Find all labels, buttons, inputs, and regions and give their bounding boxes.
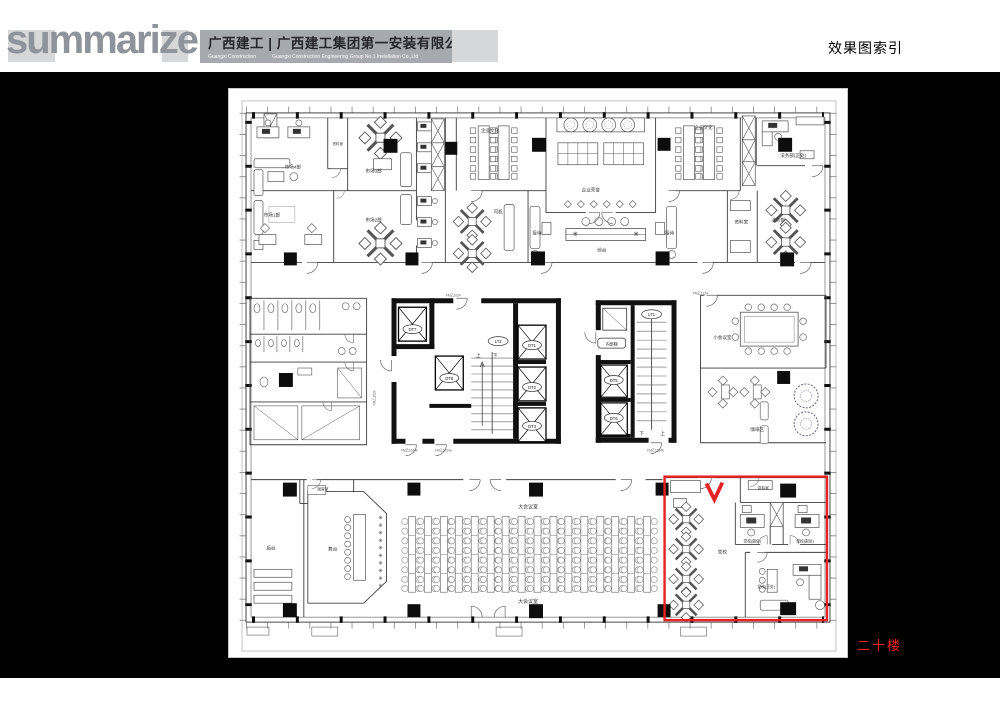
room-label: 接待 [665, 229, 675, 236]
room-label: 大会议室 [518, 504, 538, 511]
small-meeting-room [732, 304, 806, 354]
logo-text: summarize [6, 20, 197, 60]
elevator-label: LT1 [648, 312, 656, 317]
elevator-label: LT2 [495, 339, 503, 344]
fire-door-label: FM乙1224 [693, 290, 708, 295]
room-label: 资料室 [332, 141, 343, 146]
fire-door-label: FM乙1024 [446, 292, 461, 297]
room-label: 市场1部 [264, 212, 281, 219]
fire-door-label: FM乙1224b [647, 448, 664, 453]
room-label: 党校 [718, 548, 728, 555]
room-label: 咖啡区 [750, 426, 764, 433]
room-label: 接待 [532, 229, 542, 236]
room-label: 市场3部 [365, 168, 382, 175]
fire-door-label: FM乙1024b [401, 448, 418, 453]
drawing-canvas: 市场4部 资料室 市场3部 市场1部 市场2部 司机 企业文化 企业荣誉 企业文… [0, 72, 1000, 678]
company-name-cn: 广西建工 | 广西建工集团第一安装有限公司 [208, 32, 446, 52]
room-label: 司机 [494, 209, 504, 216]
highlight-arrow-icon [706, 483, 722, 500]
elevator-label: DT3 [528, 424, 537, 429]
elevator-label: DT8 [445, 376, 454, 381]
stair-up-label: 上 [660, 430, 665, 436]
company-bar: 广西建工 | 广西建工集团第一安装有限公司 Guangxi Constructi… [200, 30, 452, 63]
fire-door-label: FM乙1024a [435, 448, 452, 453]
room-label: 大会议室 [518, 598, 538, 605]
tree-icon [794, 384, 818, 408]
restrooms [254, 300, 362, 440]
elevator-label: DT7 [408, 327, 417, 332]
room-label: 调音室 [317, 487, 329, 492]
room-label: 后台 [266, 544, 276, 551]
elevator-label: DT1 [528, 343, 537, 348]
room-label: 市场4部 [285, 164, 302, 171]
party-school-area [669, 481, 825, 623]
company-en-right: Guangxi Construction Engineering Group N… [272, 54, 418, 60]
room-label: 企业荣誉 [582, 187, 601, 194]
company-name-en: Guangxi Construction Guangxi Constructio… [208, 54, 446, 60]
header-gray-block [452, 30, 498, 62]
stair-up-label: 上 [476, 352, 481, 358]
elevator-label: DT5 [610, 378, 619, 383]
room-label: 党校(副处) [796, 538, 814, 543]
floor-label: 二十楼 [857, 635, 902, 654]
room-label: 舞台 [328, 545, 338, 552]
elevator-label: DT6 [610, 416, 619, 421]
room-label: 党校(副处) [743, 538, 761, 543]
elevator-label: DT2 [528, 385, 537, 390]
room-label: 企业文化 [694, 124, 713, 131]
room-label: 企业文化 [481, 127, 500, 134]
header: summarize 广西建工 | 广西建工集团第一安装有限公司 Guangxi … [0, 0, 1000, 72]
stair-down-label: 下 [639, 431, 644, 437]
room-label: 资料室 [734, 219, 748, 226]
fire-door-label: FM乙1024 [372, 390, 377, 405]
room-label: 资料室 [758, 486, 770, 491]
plan-sheet: 市场4部 资料室 市场3部 市场1部 市场2部 司机 企业文化 企业荣誉 企业文… [228, 88, 848, 658]
room-label: 小会议室 [713, 334, 732, 341]
room-label: 党校(正处) [757, 584, 775, 589]
room-label: 市场2部 [365, 217, 382, 224]
room-label: 法务部(正处) [780, 152, 806, 159]
internal-stair-label: 内部梯 [606, 342, 618, 347]
conference-hall-seating [402, 517, 658, 593]
room-label: 前台 [597, 246, 607, 253]
coffee-area [708, 376, 818, 444]
room-label: 法务部 [771, 217, 785, 224]
tree-icon [794, 412, 818, 436]
page-title: 效果图索引 [828, 38, 903, 58]
company-en-left: Guangxi Construction [208, 54, 256, 60]
floor-plan-svg: 市场4部 资料室 市场3部 市场1部 市场2部 司机 企业文化 企业荣誉 企业文… [229, 89, 849, 659]
